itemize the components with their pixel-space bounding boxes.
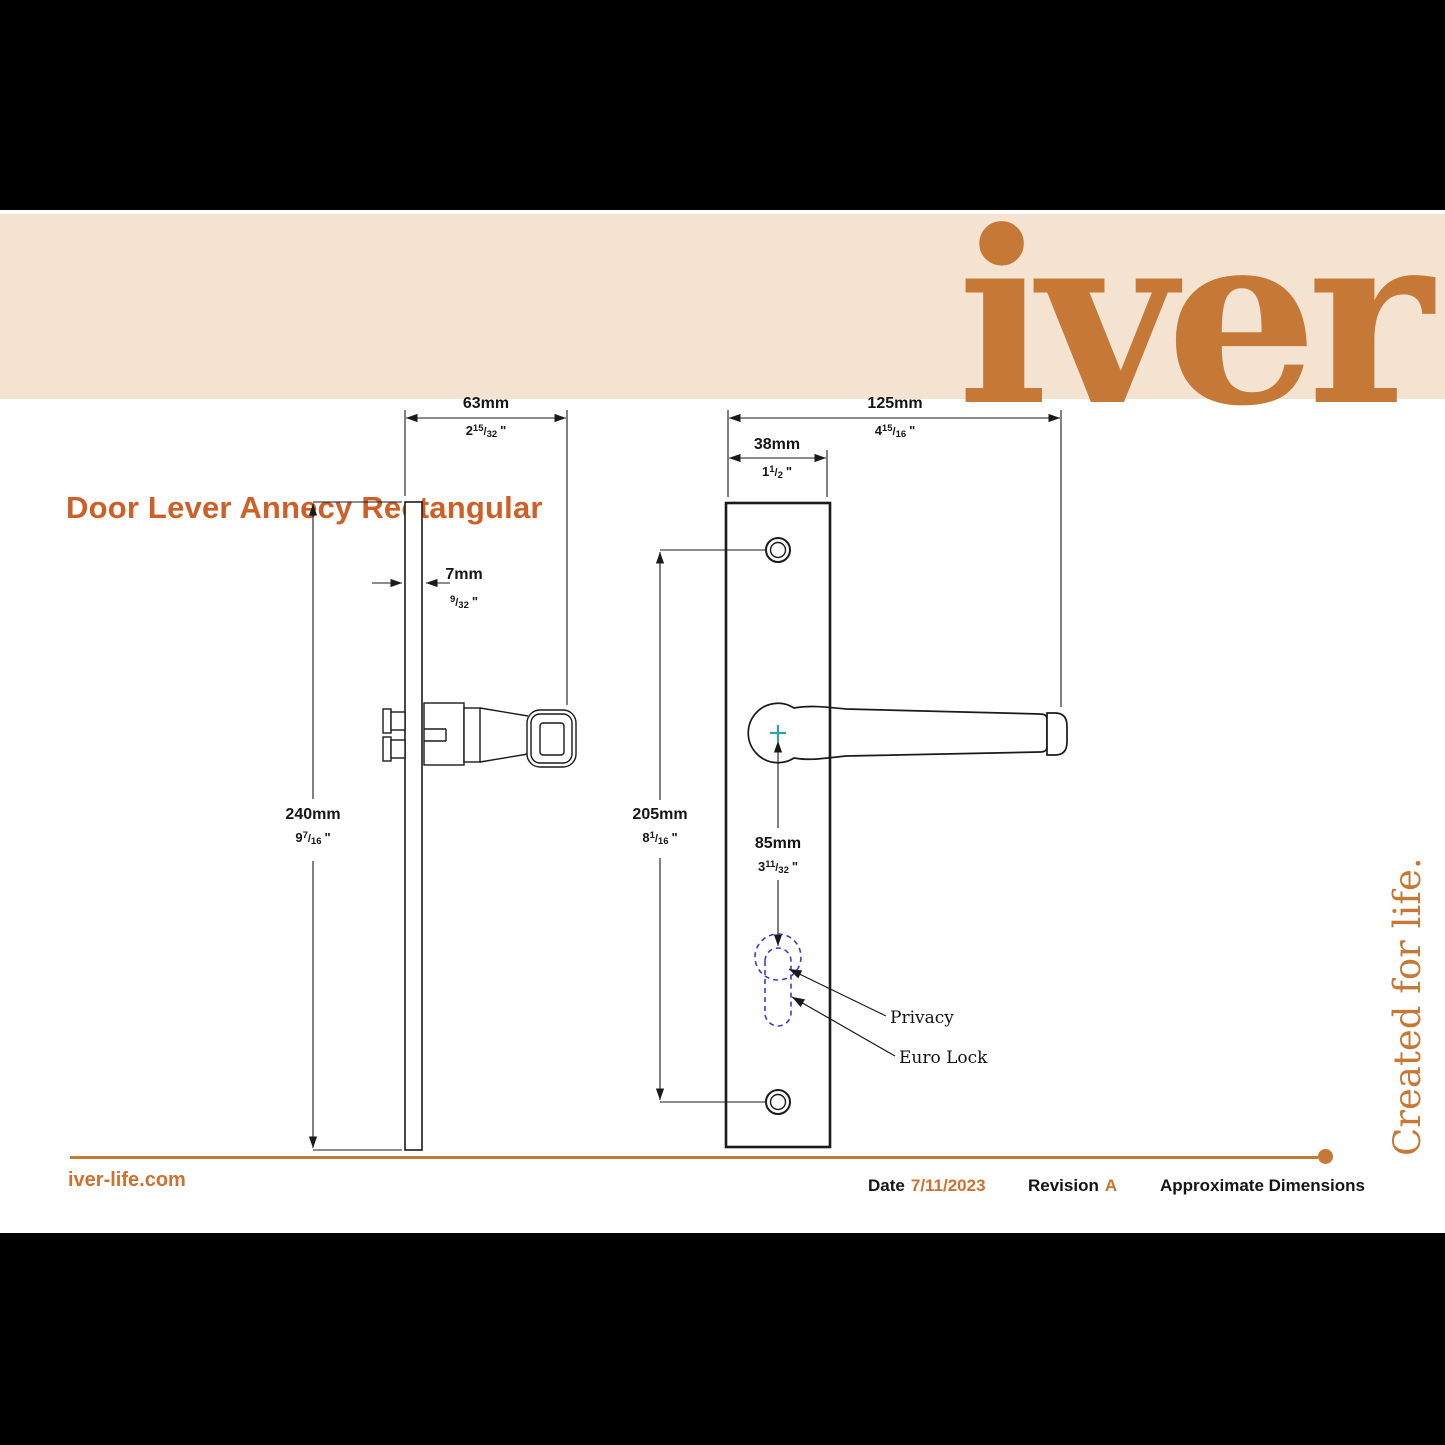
dimension-inches: 415/16": [867, 421, 922, 443]
dimension-inches: 9/32": [445, 592, 482, 614]
lever-front-view: [748, 703, 1047, 762]
backplate-side-view: [405, 502, 422, 1150]
revision-label: Revision: [1028, 1176, 1099, 1195]
side-view-group: [313, 410, 576, 1150]
dimension-mm: 125mm: [867, 395, 922, 413]
footer-rule-dot: [1318, 1149, 1333, 1164]
front-view-group: [660, 410, 1067, 1147]
lever-side-view: [424, 703, 576, 767]
euro-lock-callout-label: Euro Lock: [899, 1048, 987, 1068]
dimension-label-125mm: 125mm 415/16": [867, 395, 922, 443]
dimension-inches: 97/16": [285, 828, 340, 850]
leader-arrow-euro-lock: [792, 997, 895, 1056]
inch-fraction: 15/16: [882, 423, 906, 438]
screw-hole-bottom: [766, 1090, 790, 1114]
inch-mark: ": [909, 423, 915, 438]
dimension-label-85mm: 85mm 311/32": [755, 835, 801, 879]
dimension-mm: 240mm: [285, 806, 340, 824]
inch-whole: 4: [875, 423, 882, 438]
technical-drawing: [0, 0, 1445, 1445]
inch-fraction: 7/16: [303, 830, 322, 845]
inch-fraction: 15/32: [473, 423, 497, 438]
footer-date: Date7/11/2023: [868, 1176, 986, 1196]
inch-fraction: 9/32: [450, 594, 469, 609]
privacy-callout-label: Privacy: [890, 1008, 954, 1028]
date-label: Date: [868, 1176, 905, 1195]
lever-end-cap: [1047, 713, 1067, 755]
dimension-mm: 85mm: [755, 835, 801, 853]
dimension-mm: 38mm: [754, 436, 800, 454]
fixing-lugs: [383, 709, 405, 761]
date-value: 7/11/2023: [911, 1176, 986, 1195]
footer-note: Approximate Dimensions: [1160, 1176, 1365, 1196]
inch-mark: ": [786, 464, 792, 479]
dimension-label-63mm: 63mm 215/32": [463, 395, 509, 443]
inch-fraction: 11/32: [765, 859, 789, 874]
inch-mark: ": [472, 594, 478, 609]
inch-mark: ": [672, 830, 678, 845]
brand-tagline: Created for life.: [1386, 848, 1429, 1156]
dimension-label-205mm: 205mm 81/16": [632, 806, 687, 850]
euro-lock-cylinder-dashed: [765, 948, 791, 1026]
revision-value: A: [1105, 1176, 1117, 1195]
dimension-inches: 215/32": [463, 421, 509, 443]
dimension-label-38mm: 38mm 11/2": [754, 436, 800, 484]
leader-arrow-privacy: [789, 969, 886, 1016]
dimension-mm: 205mm: [632, 806, 687, 824]
dimension-inches: 11/2": [754, 462, 800, 484]
dimension-label-7mm: 7mm 9/32": [445, 566, 482, 614]
inch-whole: 2: [466, 423, 473, 438]
dimension-mm: 7mm: [445, 566, 482, 584]
dimension-inches: 81/16": [632, 828, 687, 850]
inch-mark: ": [792, 859, 798, 874]
website-link[interactable]: iver-life.com: [68, 1169, 186, 1192]
dimension-inches: 311/32": [755, 857, 801, 879]
inch-mark: ": [500, 423, 506, 438]
dimension-label-240mm: 240mm 97/16": [285, 806, 340, 850]
screw-hole-top: [766, 538, 790, 562]
footer-revision: RevisionA: [1028, 1176, 1117, 1196]
inch-fraction: 1/16: [650, 830, 669, 845]
inch-fraction: 1/2: [769, 464, 783, 479]
inch-mark: ": [325, 830, 331, 845]
dimension-mm: 63mm: [463, 395, 509, 413]
footer-divider-rule: [70, 1156, 1318, 1159]
